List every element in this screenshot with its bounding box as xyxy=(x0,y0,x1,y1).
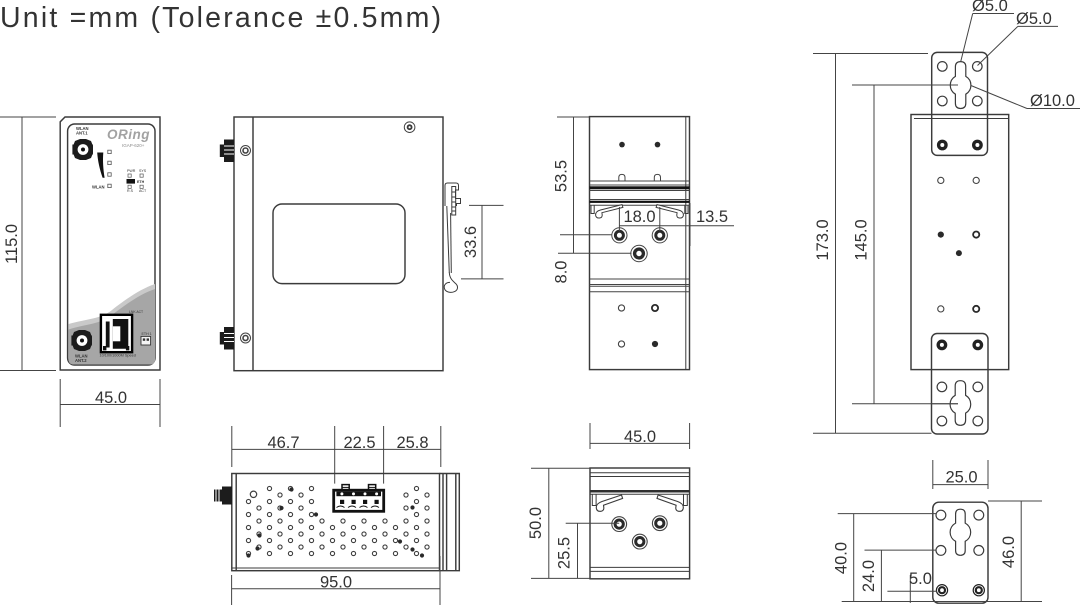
svg-text:25.8: 25.8 xyxy=(396,434,428,452)
svg-text:40.0: 40.0 xyxy=(833,542,851,574)
svg-text:LNK ACT: LNK ACT xyxy=(129,310,143,314)
svg-text:18.0: 18.0 xyxy=(623,208,655,226)
svg-text:46.0: 46.0 xyxy=(1000,536,1018,568)
svg-text:95.0: 95.0 xyxy=(320,574,352,592)
svg-text:Ø5.0: Ø5.0 xyxy=(1016,10,1052,28)
svg-text:WLAN: WLAN xyxy=(92,185,105,190)
svg-text:8.0: 8.0 xyxy=(553,261,571,284)
svg-text:10/100/1000M Speed: 10/100/1000M Speed xyxy=(100,354,136,358)
svg-text:22.5: 22.5 xyxy=(343,434,375,452)
svg-text:33.6: 33.6 xyxy=(462,226,480,258)
svg-text:145.0: 145.0 xyxy=(853,219,871,260)
svg-text:ACT: ACT xyxy=(139,189,147,193)
svg-text:45.0: 45.0 xyxy=(95,389,127,407)
svg-text:ETH: ETH xyxy=(137,180,145,184)
svg-text:24.0: 24.0 xyxy=(860,560,878,592)
svg-text:ANT.1: ANT.1 xyxy=(76,131,88,136)
svg-text:25.0: 25.0 xyxy=(945,469,977,487)
svg-text:ORing: ORing xyxy=(107,127,150,142)
svg-text:Unit =mm (Tolerance ±0.5mm): Unit =mm (Tolerance ±0.5mm) xyxy=(0,2,443,34)
svg-text:50.0: 50.0 xyxy=(527,507,545,539)
svg-text:ETH 1: ETH 1 xyxy=(142,332,152,336)
svg-text:45.0: 45.0 xyxy=(624,428,656,446)
svg-text:25.5: 25.5 xyxy=(556,537,574,569)
svg-text:Ø5.0: Ø5.0 xyxy=(972,0,1008,15)
svg-text:Ø10.0: Ø10.0 xyxy=(1030,92,1075,110)
svg-text:13.5: 13.5 xyxy=(696,208,728,226)
svg-text:ANT.2: ANT.2 xyxy=(75,358,87,363)
svg-text:53.5: 53.5 xyxy=(553,160,571,192)
svg-text:PWR: PWR xyxy=(127,169,136,173)
svg-text:115.0: 115.0 xyxy=(3,224,21,264)
svg-text:5.0: 5.0 xyxy=(909,570,932,588)
svg-text:R.S: R.S xyxy=(127,189,134,193)
svg-text:IGAP-620+: IGAP-620+ xyxy=(122,143,145,148)
svg-text:46.7: 46.7 xyxy=(267,434,299,452)
svg-text:SYS: SYS xyxy=(139,169,147,173)
svg-text:173.0: 173.0 xyxy=(814,219,832,260)
